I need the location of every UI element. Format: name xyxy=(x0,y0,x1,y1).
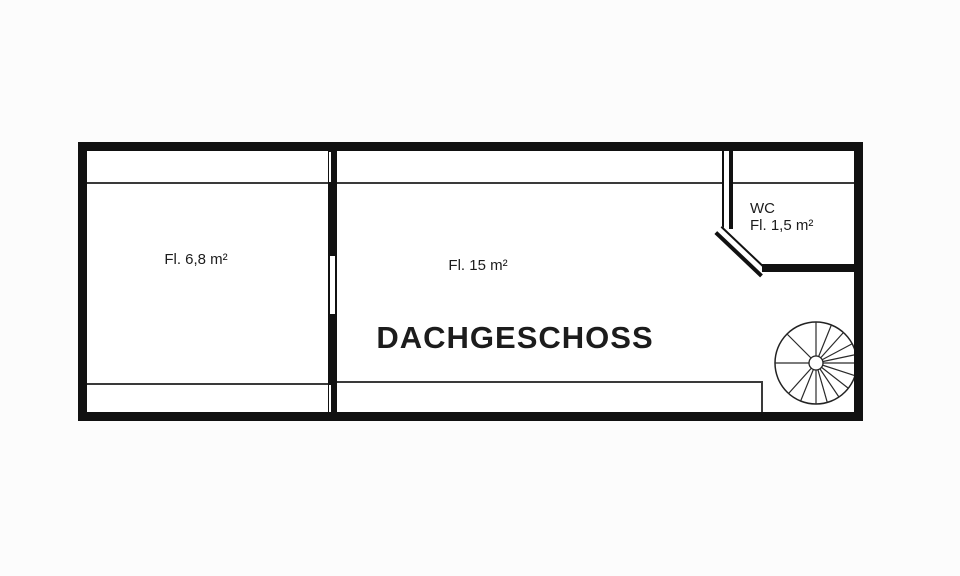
divider-top-slit xyxy=(329,152,331,182)
knee-band-right-edge xyxy=(761,381,763,412)
divider-bottom-slit xyxy=(329,385,331,412)
wall-top xyxy=(78,142,863,151)
knee-line-top xyxy=(87,182,854,184)
divider-door-opening xyxy=(330,255,335,315)
wc-area-label: Fl. 1,5 m² xyxy=(750,217,813,234)
wall-right xyxy=(854,142,863,421)
room-label-main: Fl. 15 m² xyxy=(418,257,538,274)
wall-bottom xyxy=(78,412,863,421)
plan-interior xyxy=(87,151,854,412)
wc-wall-bottom xyxy=(762,264,854,272)
spiral-staircase xyxy=(770,317,862,409)
floor-plan: Fl. 6,8 m² Fl. 15 m² WC Fl. 1,5 m² DACHG… xyxy=(0,0,960,576)
wc-wall-vertical xyxy=(722,151,733,229)
wall-left xyxy=(78,142,87,421)
floor-title: DACHGESCHOSS xyxy=(355,320,675,356)
knee-line-bottom-left xyxy=(87,383,328,385)
knee-line-bottom-middle xyxy=(337,381,763,383)
wc-label: WC xyxy=(750,200,813,217)
room-label-left: Fl. 6,8 m² xyxy=(136,251,256,268)
wc-label-block: WC Fl. 1,5 m² xyxy=(750,200,813,234)
